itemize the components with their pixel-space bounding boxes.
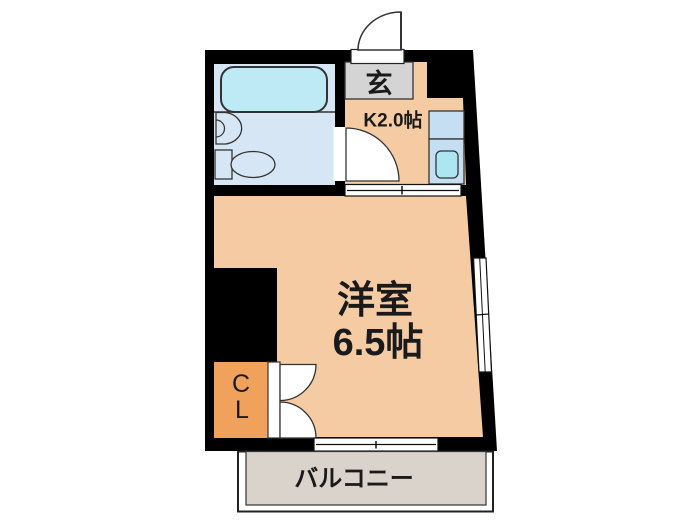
floor-plan: 玄 K2.0帖 洋室 6.5帖 C L バルコニー (0, 0, 700, 525)
kitchen-counter (429, 111, 464, 139)
entrance-door-sill (351, 50, 404, 64)
toilet-tank (215, 150, 232, 179)
floor-plan-canvas: 玄 K2.0帖 洋室 6.5帖 C L バルコニー (0, 0, 700, 525)
bathroom-doorway (334, 127, 348, 181)
closet-door-track (268, 362, 280, 438)
kitchen-label: K2.0帖 (363, 109, 422, 132)
bathtub (221, 67, 327, 112)
kitchen-sink-basin (436, 151, 458, 178)
toilet-bowl (231, 152, 275, 178)
balcony-label: バルコニー (294, 466, 414, 493)
main-room-label-line1: 洋室 (337, 279, 413, 322)
entrance-door-arc (358, 12, 401, 50)
entrance-label: 玄 (366, 68, 393, 99)
kitchen-slider-door (345, 185, 461, 197)
balcony-window (314, 438, 438, 451)
closet-label-line2: L (235, 396, 249, 424)
main-room-label-line2: 6.5帖 (333, 322, 424, 364)
closet-label-line1: C (232, 370, 250, 398)
